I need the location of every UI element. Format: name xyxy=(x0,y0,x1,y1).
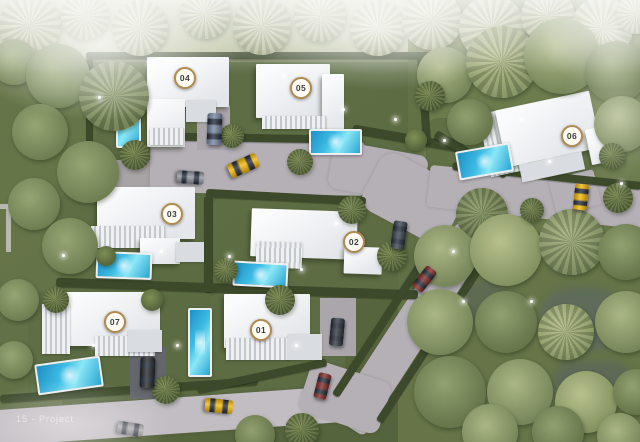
plot-badge-07[interactable]: 07 xyxy=(104,311,126,333)
plot-badge-05[interactable]: 05 xyxy=(290,77,312,99)
plot-badge-06[interactable]: 06 xyxy=(561,125,583,147)
plot-badge-01[interactable]: 01 xyxy=(250,319,272,341)
watermark-text: 15 - Project xyxy=(16,414,74,424)
site-plan-rendering: 04050603020701 15 - Project xyxy=(0,0,640,442)
badges-layer: 04050603020701 xyxy=(0,0,640,442)
plot-badge-03[interactable]: 03 xyxy=(161,203,183,225)
plot-badge-02[interactable]: 02 xyxy=(343,231,365,253)
plot-badge-04[interactable]: 04 xyxy=(174,67,196,89)
